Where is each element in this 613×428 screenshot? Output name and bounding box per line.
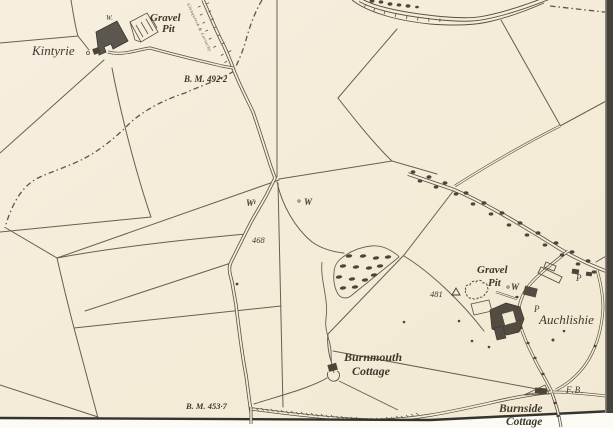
svg-text:B. M. 492·2: B. M. 492·2 [183,74,228,84]
svg-text:B. M. 453·7: B. M. 453·7 [185,401,228,411]
svg-text:Auchlishie: Auchlishie [538,312,594,327]
svg-text:481: 481 [430,289,443,299]
svg-text:W: W [511,282,520,292]
svg-text:Burnmouth: Burnmouth [343,350,402,364]
svg-text:Cottage: Cottage [352,364,391,378]
svg-text:W.: W. [106,14,113,22]
svg-text:Pit: Pit [488,277,502,289]
svg-text:Cottage: Cottage [506,416,542,428]
svg-text:Pit: Pit [162,23,176,35]
svg-text:468: 468 [252,235,266,245]
svg-text:F.B.: F.B. [565,385,584,395]
svg-text:Kintyrie: Kintyrie [31,43,75,58]
svg-text:Burnside: Burnside [498,403,542,415]
svg-text:P: P [575,273,582,283]
svg-text:W: W [304,197,313,207]
svg-text:Gravel: Gravel [477,264,508,276]
svg-text:P: P [533,304,540,314]
